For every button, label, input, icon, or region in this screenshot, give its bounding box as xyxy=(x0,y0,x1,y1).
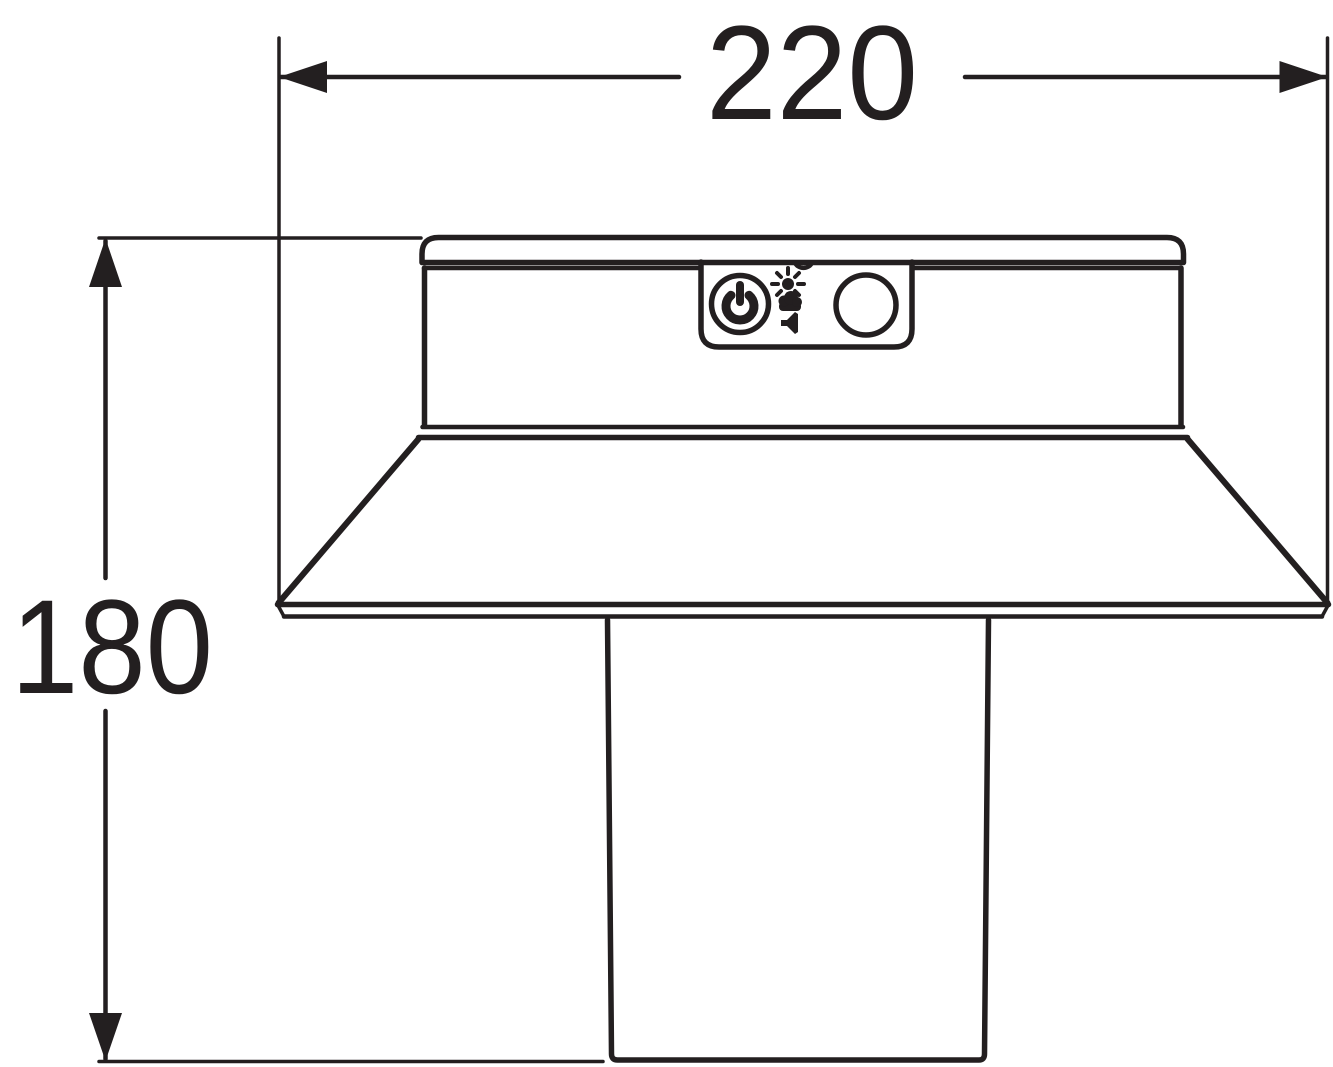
lamp-cap xyxy=(422,238,1184,263)
arrowhead-right-icon xyxy=(1280,61,1328,93)
technical-drawing: 220 180 xyxy=(0,0,1333,1067)
arrowhead-up-icon xyxy=(89,239,122,288)
lamp-pole xyxy=(608,620,989,1060)
cloud-puff-right xyxy=(792,297,802,307)
sensor-window xyxy=(836,275,896,335)
sound-icon xyxy=(781,312,798,334)
control-panel xyxy=(701,262,912,347)
dimension-height: 180 xyxy=(11,238,603,1062)
drawing-canvas: 220 180 xyxy=(0,0,1333,1067)
sun-core xyxy=(782,278,794,290)
shade-slope-left xyxy=(279,439,419,603)
dimension-width: 220 xyxy=(279,0,1328,602)
light-fixture xyxy=(278,238,1329,1061)
power-icon xyxy=(712,276,769,333)
arrowhead-left-icon xyxy=(279,61,327,93)
height-dimension-label: 180 xyxy=(11,573,213,722)
width-dimension-label: 220 xyxy=(706,0,918,148)
shade-slope-right xyxy=(1188,439,1328,603)
arrowhead-down-icon xyxy=(89,1013,122,1061)
